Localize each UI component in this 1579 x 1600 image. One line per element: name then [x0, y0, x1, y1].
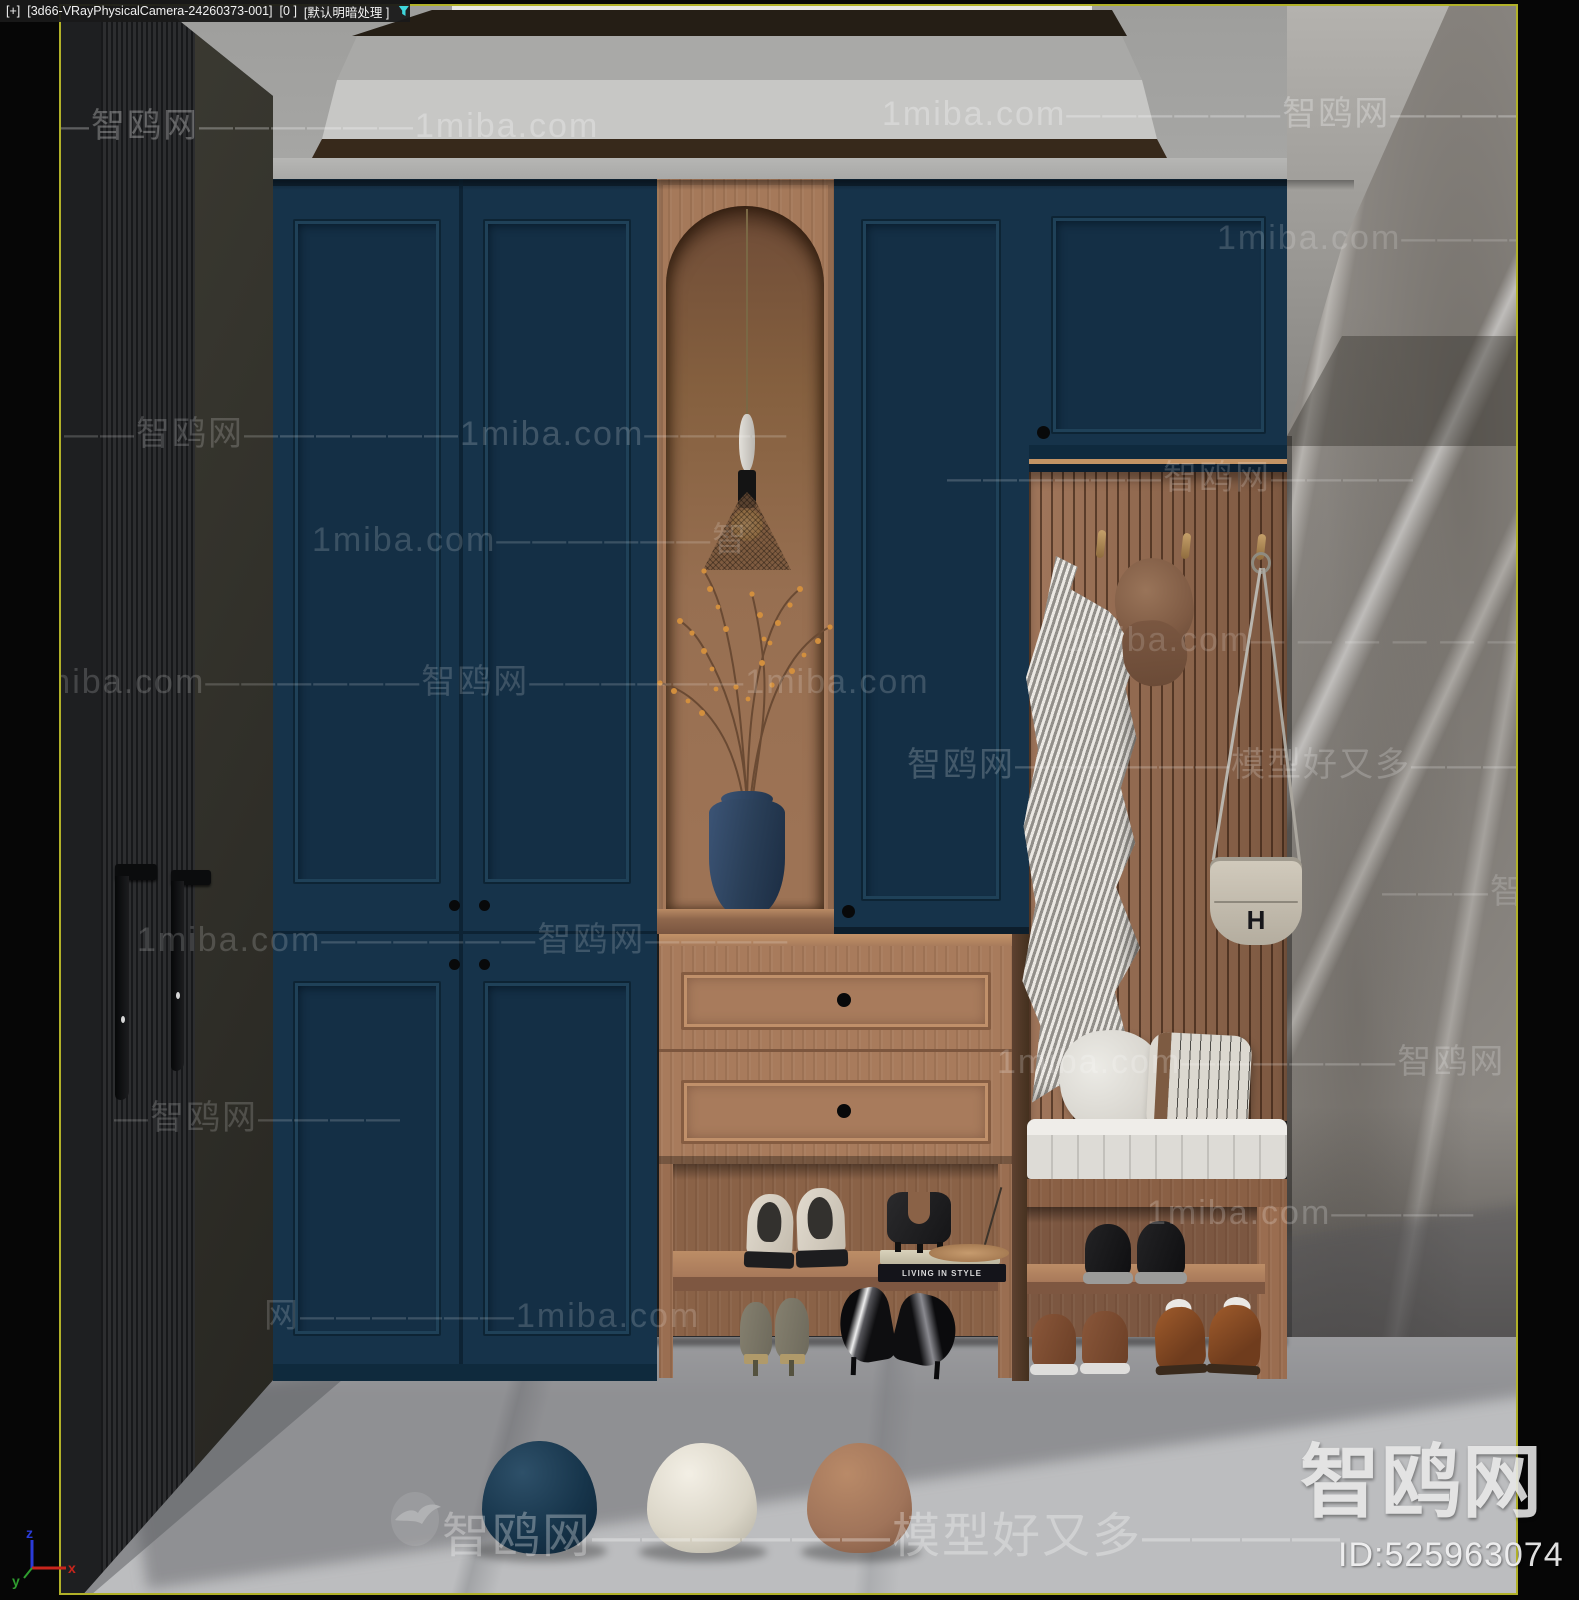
- viewport-frame-label[interactable]: [0 ]: [280, 4, 297, 18]
- dried-branches[interactable]: [652, 559, 842, 804]
- handle-dot: [176, 992, 180, 999]
- sneaker-sole: [1080, 1363, 1130, 1374]
- hanging-cap[interactable]: [1109, 558, 1201, 690]
- pendant-lamp[interactable]: [697, 209, 797, 579]
- door-knob[interactable]: [1037, 426, 1050, 439]
- door-panel: [293, 981, 441, 1336]
- sneaker-sole: [1030, 1364, 1078, 1375]
- door-panel: [861, 219, 1001, 901]
- ceiling-mid-band: [337, 36, 1142, 80]
- door-knob[interactable]: [449, 959, 460, 970]
- door-bottom-shadow: [834, 927, 1029, 934]
- door-knob[interactable]: [449, 900, 460, 911]
- viewport[interactable]: LIVING IN STYLE: [59, 4, 1518, 1595]
- arch-niche-column[interactable]: [657, 179, 834, 934]
- loafer-sole: [1135, 1272, 1187, 1284]
- ceiling-light-panel: [322, 80, 1157, 139]
- lamp-ceramic-holder: [739, 414, 755, 472]
- loafer-body: [1085, 1224, 1131, 1276]
- wardrobe-open-door: [195, 6, 273, 1595]
- wardrobe-handle[interactable]: [169, 870, 213, 1075]
- derby-sole: [1206, 1364, 1260, 1376]
- door-panel: [483, 981, 631, 1336]
- drawer-front[interactable]: [681, 1080, 991, 1144]
- counter-highlight: [659, 934, 1012, 946]
- 3dsmax-viewport-screenshot: LIVING IN STYLE: [0, 0, 1579, 1600]
- wardrobe-slat-doors: [101, 6, 195, 1595]
- navy-tall-door[interactable]: [834, 179, 1029, 934]
- door-knob[interactable]: [479, 959, 490, 970]
- cabinet-bottom-rail: [1029, 445, 1287, 459]
- vase[interactable]: [709, 791, 785, 917]
- shelf-side: [659, 1164, 673, 1378]
- cream-heel[interactable]: [746, 1193, 795, 1271]
- handle-bar: [171, 881, 184, 1071]
- door-panel: [483, 219, 631, 884]
- incense-dish[interactable]: [929, 1244, 1009, 1262]
- handle-bar: [115, 876, 129, 1100]
- brown-derby[interactable]: [1207, 1296, 1263, 1379]
- bench-frame: [1027, 1179, 1287, 1207]
- derby-body: [1207, 1304, 1262, 1371]
- door-knob[interactable]: [479, 900, 490, 911]
- heel-platform: [796, 1249, 849, 1268]
- funnel-icon[interactable]: [398, 4, 410, 18]
- heel-platform: [744, 1251, 795, 1269]
- axis-x-label: x: [68, 1560, 76, 1576]
- viewport-label-bar: [+] [3d66-VRayPhysicalCamera-24260373-00…: [0, 0, 410, 22]
- niche-shelf-lip: [657, 909, 834, 934]
- drawer-seam: [659, 1049, 1012, 1052]
- vase-body: [709, 799, 785, 917]
- wardrobe-handle[interactable]: [113, 864, 159, 1104]
- derby-sole: [1155, 1364, 1207, 1376]
- door-rail-seam: [273, 931, 657, 934]
- handle-dot: [121, 1016, 125, 1023]
- loafer-sole: [1083, 1272, 1133, 1284]
- ceiling-trim: [312, 139, 1167, 158]
- cushion-front: [1027, 1135, 1287, 1179]
- toe-kick: [273, 1364, 657, 1381]
- derby-body: [1153, 1306, 1206, 1371]
- heel-body: [775, 1298, 809, 1358]
- book-title: LIVING IN STYLE: [902, 1269, 982, 1278]
- stiletto: [753, 1360, 758, 1376]
- ceiling-soffit: [273, 158, 1354, 180]
- olive-heel[interactable]: [775, 1298, 809, 1376]
- book-bottom: LIVING IN STYLE: [878, 1264, 1006, 1282]
- sculpture-notch: [908, 1192, 930, 1224]
- stiletto: [851, 1357, 857, 1375]
- shelf-top-shadow: [673, 1164, 998, 1180]
- olive-heel[interactable]: [740, 1302, 772, 1374]
- soffit-shadow: [273, 180, 1354, 190]
- brown-derby[interactable]: [1153, 1298, 1207, 1379]
- brown-sneaker[interactable]: [1032, 1314, 1076, 1376]
- door-knob[interactable]: [842, 905, 855, 918]
- sneaker-body: [1082, 1311, 1128, 1366]
- wardrobe-left-edge: [61, 6, 101, 1595]
- door-panel: [1051, 216, 1266, 434]
- viewport-shading-label[interactable]: [默认明暗处理 ]: [304, 2, 389, 21]
- drawer-knob[interactable]: [837, 1104, 851, 1118]
- door-panel: [293, 219, 441, 884]
- stiletto: [789, 1360, 794, 1376]
- wardrobe-dark[interactable]: [61, 6, 273, 1595]
- sculpture-leg: [895, 1242, 901, 1252]
- viewport-menu-plus[interactable]: [+]: [6, 4, 20, 18]
- viewport-camera-label[interactable]: [3d66-VRayPhysicalCamera-24260373-001]: [27, 4, 272, 18]
- stiletto: [934, 1361, 940, 1379]
- lamp-cord: [746, 209, 748, 416]
- drawer-front[interactable]: [681, 972, 991, 1030]
- bag-logo: H: [1210, 905, 1302, 936]
- drawer-knob[interactable]: [837, 993, 851, 1007]
- sneaker-body: [1032, 1314, 1076, 1366]
- bench-cushion[interactable]: [1027, 1119, 1287, 1179]
- black-loafer[interactable]: [1085, 1224, 1131, 1286]
- world-axis-gizmo: z x y: [8, 1528, 84, 1592]
- heel-body: [740, 1302, 772, 1358]
- brown-sneaker[interactable]: [1082, 1311, 1128, 1376]
- axis-y-label: y: [12, 1573, 20, 1589]
- navy-cabinet-left[interactable]: [273, 179, 657, 1381]
- cushion-top: [1027, 1119, 1287, 1135]
- loafer-body: [1137, 1221, 1185, 1276]
- handbag[interactable]: H: [1210, 857, 1302, 947]
- door-stile: [459, 179, 463, 1369]
- unit-bottom-shadow: [659, 1156, 1012, 1164]
- cream-heel[interactable]: [796, 1187, 847, 1271]
- ceiling-dark-frame: [352, 10, 1127, 36]
- shoe-shelf-left[interactable]: LIVING IN STYLE: [659, 1164, 1012, 1378]
- black-loafer[interactable]: [1137, 1221, 1185, 1286]
- shoe-shelf-right[interactable]: [1027, 1207, 1287, 1381]
- navy-upper-cabinet[interactable]: [1029, 179, 1287, 459]
- black-vase-sculpture[interactable]: [887, 1192, 951, 1252]
- sculpture-leg: [917, 1244, 923, 1253]
- bag-flap-line: [1214, 901, 1298, 903]
- pump-body: [888, 1289, 963, 1371]
- axis-z-label: z: [26, 1528, 33, 1541]
- heel-opening: [757, 1202, 782, 1243]
- drawer-unit[interactable]: [659, 934, 1012, 1164]
